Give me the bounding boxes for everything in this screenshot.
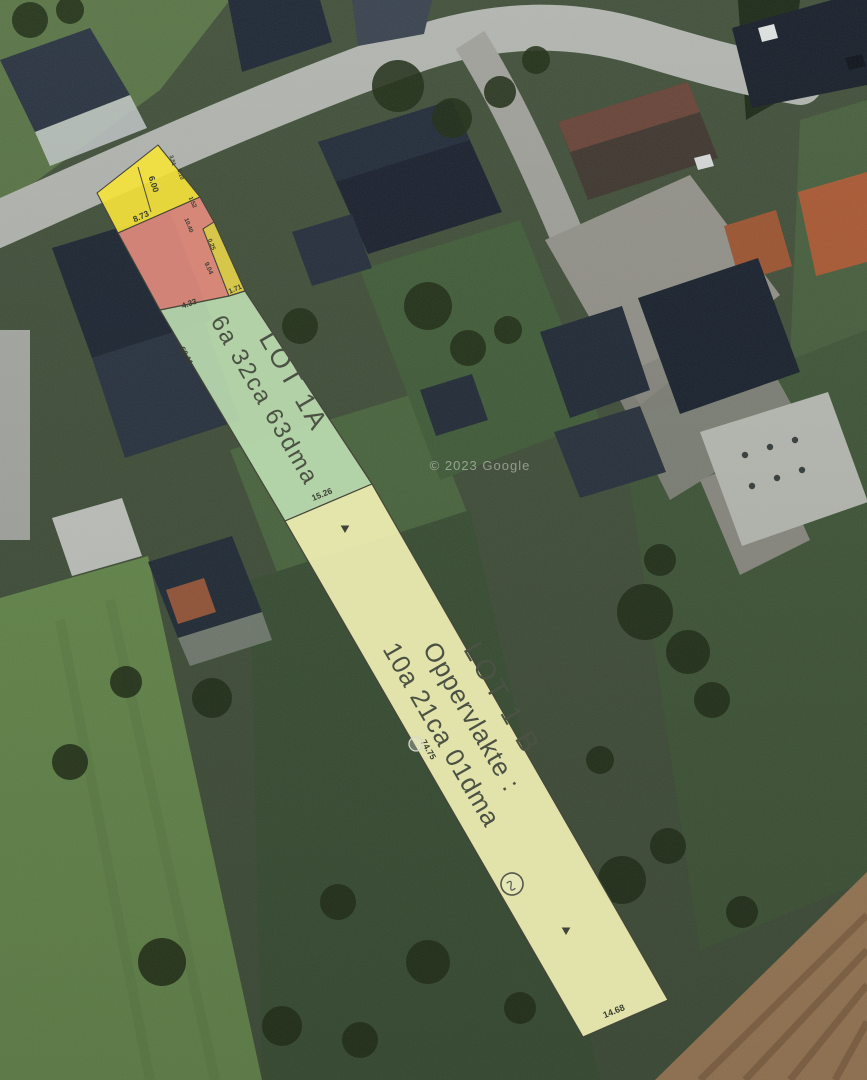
satellite-parcel-map: © 2023 Google 6.00 3.51 6.10 8.73 1.52 1… — [0, 0, 867, 1080]
background-scene: © 2023 Google — [0, 0, 867, 1080]
vignette — [0, 0, 867, 1080]
map-canvas: © 2023 Google 6.00 3.51 6.10 8.73 1.52 1… — [0, 0, 867, 1080]
google-watermark: © 2023 Google — [430, 458, 531, 473]
edge-circle-marker — [409, 737, 423, 751]
